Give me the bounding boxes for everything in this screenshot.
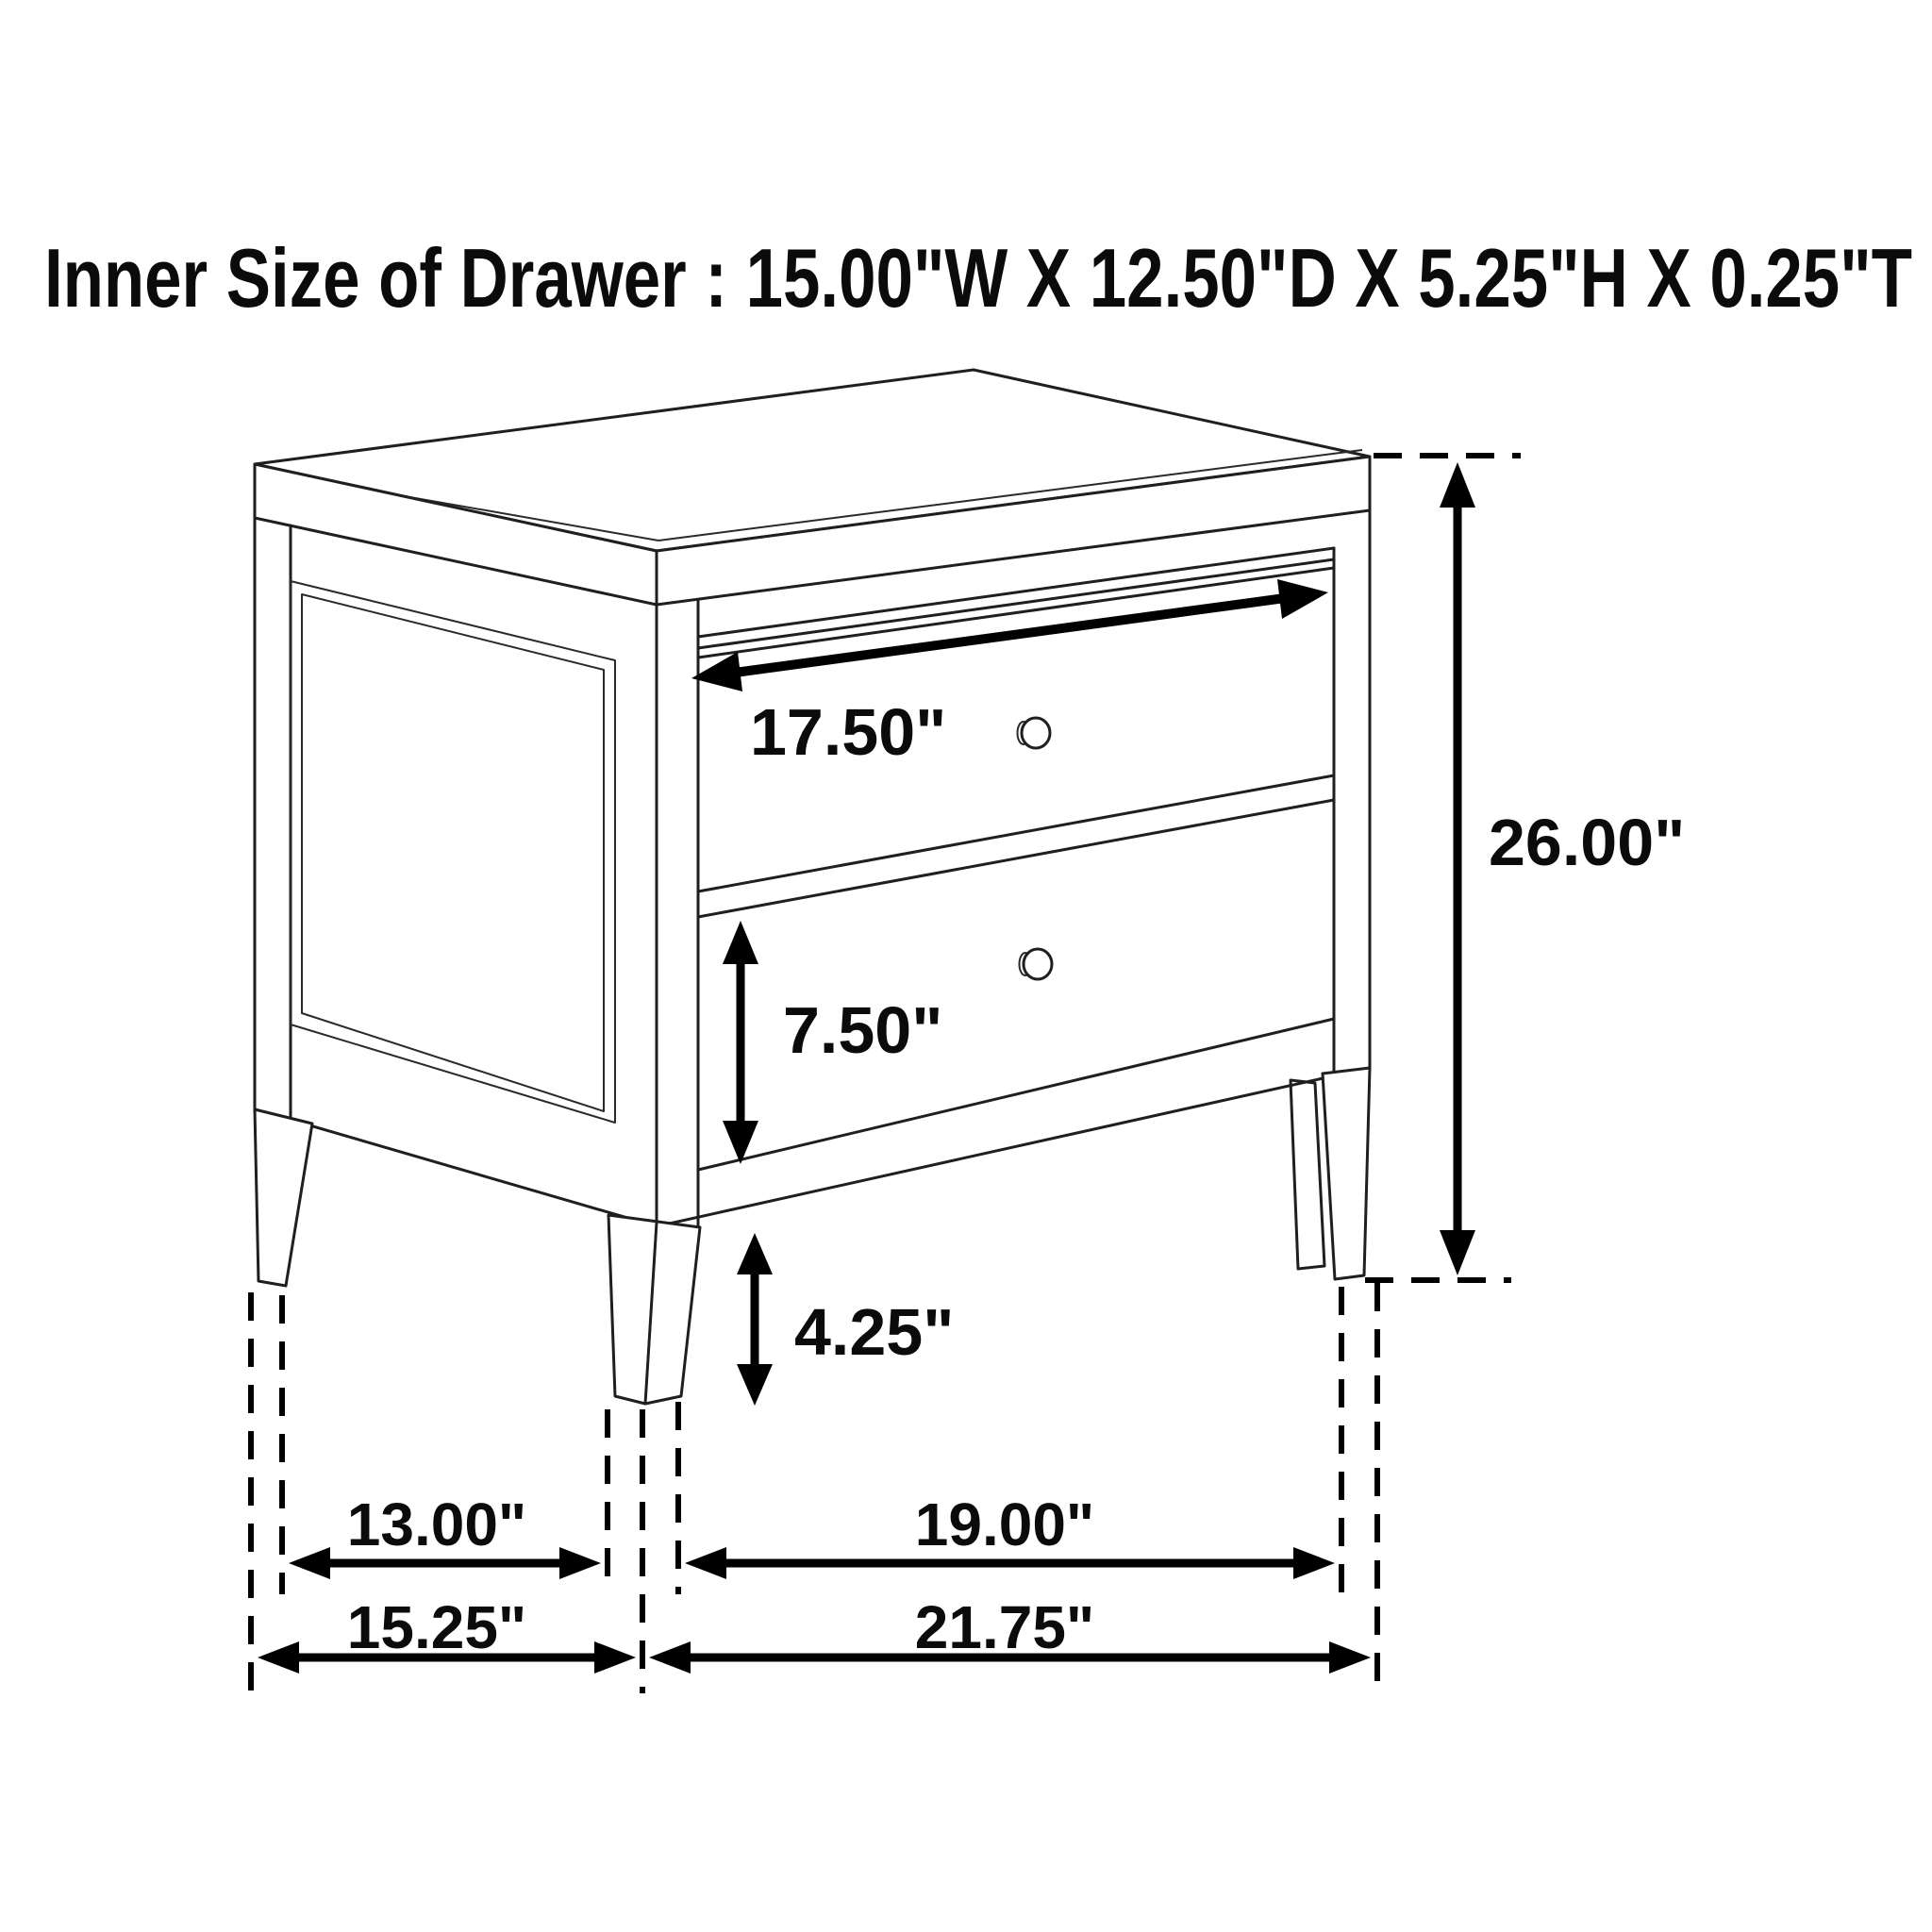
nightstand-drawing (255, 370, 1370, 1404)
side-bottom-edge (255, 1109, 657, 1226)
back-right-leg (1291, 1080, 1324, 1269)
dim-label-drawer-opening-width: 17.50" (750, 695, 946, 769)
dim-drawer-opening-width: 17.50" (691, 579, 1328, 769)
dim-label-overall-width: 21.75" (915, 1593, 1095, 1661)
bottom-drawer-top-edge (698, 800, 1334, 917)
side-panel-frame-opening (291, 581, 615, 1123)
dim-label-drawer-front-height: 7.50" (783, 993, 942, 1067)
dimension-diagram-page: Inner Size of Drawer : 15.00"W X 12.50"D… (0, 0, 1932, 1932)
dim-label-side-leg-span: 13.00" (347, 1491, 527, 1558)
dim-label-leg-clearance: 4.25" (794, 1295, 954, 1369)
dim-overall-height: 26.00" (1440, 462, 1685, 1275)
carcass-bottom-edge (657, 1068, 1370, 1226)
dim-front-leg-span: 19.00" (685, 1491, 1335, 1579)
bottom-drawer-knob (1020, 949, 1053, 979)
side-panel-bevel (302, 594, 604, 1111)
back-left-leg (255, 1109, 312, 1286)
front-right-leg (1323, 1068, 1370, 1279)
dim-drawer-front-height: 7.50" (723, 921, 942, 1164)
nightstand-dimension-diagram: Inner Size of Drawer : 15.00"W X 12.50"D… (0, 0, 1932, 1932)
top-drawer-knob (1018, 718, 1051, 748)
dim-label-overall-depth: 15.25" (347, 1593, 527, 1661)
dim-side-leg-span: 13.00" (289, 1491, 601, 1579)
dim-overall-width: 21.75" (649, 1593, 1371, 1674)
dim-label-overall-height: 26.00" (1489, 806, 1685, 879)
dim-label-front-leg-span: 19.00" (915, 1491, 1095, 1558)
top-drawer-bottom-edge (698, 775, 1334, 891)
diagram-title: Inner Size of Drawer : 15.00"W X 12.50"D… (44, 231, 1912, 325)
dim-leg-clearance: 4.25" (737, 1233, 954, 1406)
dim-overall-depth: 15.25" (258, 1593, 636, 1674)
